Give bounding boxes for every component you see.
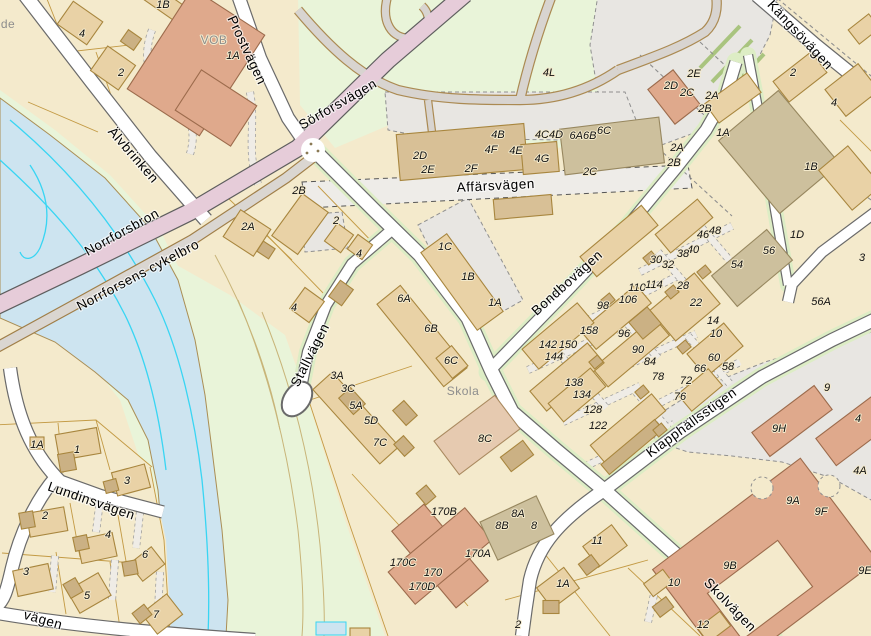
- house-number: 54: [731, 259, 743, 271]
- house-number: 2: [514, 619, 521, 631]
- house-number: 1A: [226, 50, 239, 62]
- area-label: VOB: [201, 33, 228, 47]
- house-number: 2E: [686, 68, 701, 80]
- house-number: 6C: [597, 125, 611, 137]
- house-number: 144: [545, 351, 563, 363]
- house-number: 9H: [772, 423, 786, 435]
- map-canvas[interactable]: 1B421A2B2A2442D2E2F4B4F4E4C4D4G6A6B6C2C4…: [0, 0, 871, 636]
- house-number: 4B: [491, 129, 504, 141]
- house-number: 2D: [663, 80, 678, 92]
- house-number: 2E: [420, 164, 435, 176]
- house-number: 6B: [424, 323, 437, 335]
- house-number: 78: [652, 371, 665, 383]
- house-number: 138: [565, 377, 584, 389]
- house-number: 3C: [341, 383, 355, 395]
- house-number: 1B: [156, 0, 169, 11]
- house-number: 106: [619, 294, 638, 306]
- house-number: 4: [79, 28, 85, 40]
- house-number: 9A: [786, 495, 799, 507]
- house-number: 114: [645, 279, 663, 291]
- house-number: 2B: [666, 157, 680, 169]
- house-number: 2A: [704, 90, 718, 102]
- house-number: 56A: [811, 296, 831, 308]
- road: [428, 100, 432, 132]
- house-number: 9: [824, 382, 830, 394]
- house-number: 4C4D: [535, 129, 563, 141]
- house-number: 4: [105, 529, 111, 541]
- house-number: 4L: [543, 67, 555, 79]
- house-number: 1B: [461, 271, 474, 283]
- house-number: 2B: [697, 103, 711, 115]
- house-number: 1B: [804, 161, 817, 173]
- building: [103, 479, 119, 494]
- building: [19, 511, 36, 529]
- house-number: 22: [689, 297, 702, 309]
- planting-circle: [818, 475, 840, 497]
- house-number: 3A: [330, 370, 343, 382]
- house-number: 142: [539, 339, 557, 351]
- bollard-dot: [317, 150, 320, 153]
- house-number: 14: [707, 315, 719, 327]
- house-number: 1A: [488, 297, 501, 309]
- house-number: 2: [332, 215, 339, 227]
- house-number: 4E: [509, 145, 523, 157]
- house-number: 7C: [373, 437, 387, 449]
- house-number: 170B: [431, 506, 457, 518]
- house-number: 90: [632, 344, 645, 356]
- lane: [112, 560, 115, 600]
- house-number: 4: [291, 302, 297, 314]
- house-number: 2B: [291, 185, 305, 197]
- house-number: 8C: [478, 433, 492, 445]
- house-number: 3: [124, 475, 131, 487]
- house-number: 8A: [511, 508, 524, 520]
- house-number: 4: [356, 248, 362, 260]
- house-number: 3: [23, 566, 30, 578]
- house-number: 2C: [582, 166, 597, 178]
- house-number: 10: [710, 328, 723, 340]
- house-number: 28: [676, 280, 690, 292]
- house-number: 98: [597, 300, 610, 312]
- house-number: 170D: [409, 581, 435, 593]
- house-number: 72: [680, 375, 692, 387]
- house-number: 1A: [30, 439, 43, 451]
- house-number: 4: [855, 413, 861, 425]
- house-number: 122: [589, 420, 607, 432]
- house-number: 2F: [464, 163, 479, 175]
- swim-area: [316, 622, 346, 635]
- house-number: 5D: [364, 415, 378, 427]
- house-number: 6A6B: [570, 130, 597, 142]
- house-number: 4F: [485, 144, 499, 156]
- house-number: 1A: [716, 127, 729, 139]
- house-number: 1: [74, 444, 80, 456]
- house-number: 2: [41, 510, 48, 522]
- planting-circle: [751, 477, 773, 499]
- road-junction: [301, 138, 325, 162]
- house-number: 56: [763, 245, 776, 257]
- building: [350, 628, 370, 636]
- building: [543, 601, 559, 614]
- house-number: 6C: [444, 355, 458, 367]
- building: [122, 560, 138, 576]
- house-number: 8B: [495, 520, 508, 532]
- house-number: 9E: [858, 565, 871, 577]
- house-number: 170: [424, 567, 443, 579]
- house-number: 84: [644, 356, 656, 368]
- house-number: 12: [697, 619, 709, 631]
- house-number: 4G: [535, 153, 550, 165]
- house-number: 4A: [853, 465, 866, 477]
- house-number: 2C: [679, 87, 694, 99]
- bollard-dot: [306, 152, 309, 155]
- house-number: 2: [117, 67, 124, 79]
- house-number: 9F: [815, 506, 829, 518]
- house-number: 150: [559, 339, 578, 351]
- house-number: 6: [142, 549, 149, 561]
- area-label: Skola: [447, 384, 480, 398]
- house-number: 2: [789, 67, 796, 79]
- house-number: 5A: [349, 400, 362, 412]
- house-number: 134: [573, 389, 591, 401]
- house-number: 6A: [397, 293, 410, 305]
- house-number: 1D: [790, 229, 804, 241]
- house-number: 38: [677, 248, 690, 260]
- house-number: 170C: [390, 557, 416, 569]
- house-number: 7: [153, 609, 160, 621]
- house-number: 3: [859, 252, 866, 264]
- house-number: 1C: [438, 241, 452, 253]
- house-number: 2A: [669, 142, 683, 154]
- house-number: 1A: [556, 578, 569, 590]
- house-number: 9B: [723, 560, 736, 572]
- house-number: 66: [694, 363, 707, 375]
- building: [73, 535, 90, 552]
- house-number: 48: [709, 225, 722, 237]
- map-viewport[interactable]: 1B421A2B2A2442D2E2F4B4F4E4C4D4G6A6B6C2C4…: [0, 0, 871, 636]
- house-number: 11: [591, 535, 602, 547]
- house-number: 4: [831, 97, 837, 109]
- house-number: 158: [580, 325, 599, 337]
- house-number: 2D: [412, 150, 427, 162]
- house-number: 2A: [240, 221, 254, 233]
- building: [493, 195, 553, 220]
- house-number: 60: [708, 352, 721, 364]
- house-number: 5: [84, 590, 91, 602]
- house-number: 8: [531, 520, 538, 532]
- bollard-dot: [310, 143, 313, 146]
- lane: [136, 512, 140, 548]
- house-number: 58: [722, 361, 735, 373]
- house-number: 76: [674, 391, 687, 403]
- house-number: 128: [584, 404, 603, 416]
- area-label: de: [1, 17, 15, 31]
- house-number: 170A: [465, 548, 491, 560]
- house-number: 96: [618, 328, 631, 340]
- house-number: 110: [628, 282, 646, 294]
- house-number: 10: [668, 577, 681, 589]
- house-number: 32: [662, 259, 674, 271]
